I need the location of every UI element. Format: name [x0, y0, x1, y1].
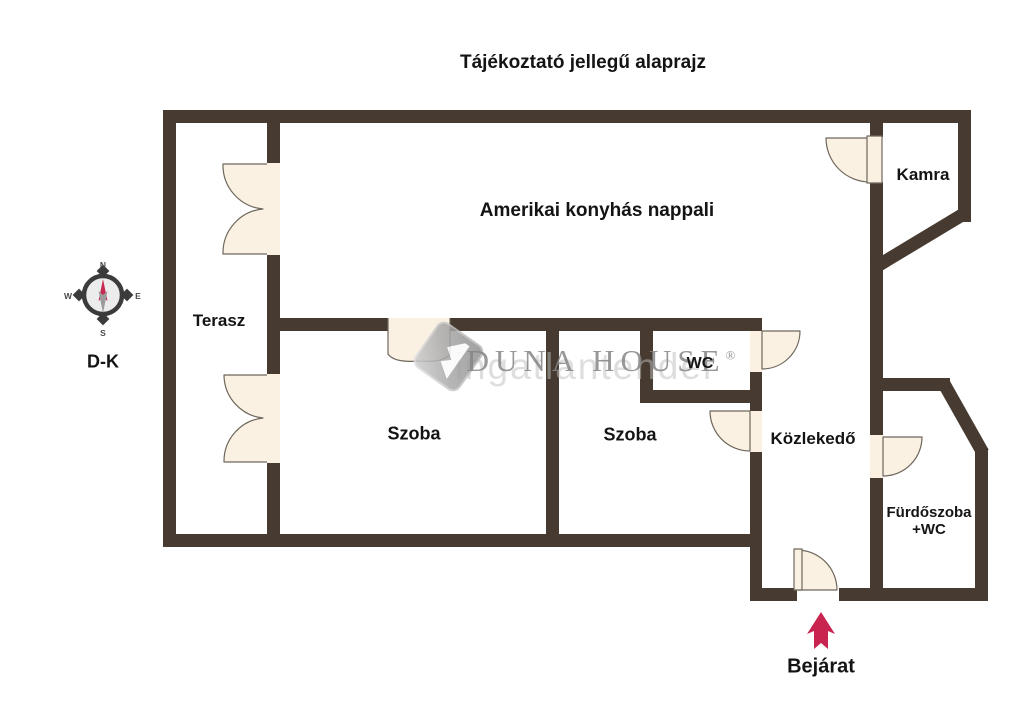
door-terasz-upper: [223, 163, 280, 255]
door-kamra: [826, 136, 882, 183]
room-label-terasz: Terasz: [193, 311, 246, 331]
floor-plan-page: Tájékoztató jellegű alaprajz: [0, 0, 1024, 714]
room-label-kamra: Kamra: [897, 165, 950, 185]
door-furdoszoba: [870, 435, 922, 478]
orientation-label: D-K: [87, 352, 119, 373]
room-label-kozlekedo: Közlekedő: [770, 429, 855, 449]
room-label-nappali: Amerikai konyhás nappali: [480, 200, 714, 222]
room-label-szoba2: Szoba: [603, 425, 656, 446]
door-wc: [750, 331, 800, 372]
floor-plan-drawing: N E S W: [0, 0, 1024, 714]
entrance-label: Bejárat: [787, 656, 855, 679]
up-arrow-icon: [807, 612, 835, 649]
compass-s-label: S: [100, 328, 106, 338]
door-szoba1: [388, 318, 450, 361]
room-label-furdoszoba: Fürdőszoba +WC: [887, 504, 972, 538]
page-title: Tájékoztató jellegű alaprajz: [460, 52, 706, 74]
compass-e-label: E: [135, 291, 141, 301]
compass-n-label: N: [100, 260, 106, 270]
compass-rose-icon: N E S W: [64, 260, 141, 338]
room-label-szoba1: Szoba: [387, 424, 440, 445]
walls: [163, 110, 988, 601]
compass-w-label: W: [64, 291, 73, 301]
door-szoba2: [710, 411, 762, 452]
room-label-wc: WC: [687, 355, 714, 373]
door-terasz-lower: [224, 374, 280, 463]
furdoszoba-line2: +WC: [887, 521, 972, 538]
door-entrance: [794, 549, 837, 590]
furdoszoba-line1: Fürdőszoba: [887, 504, 972, 521]
